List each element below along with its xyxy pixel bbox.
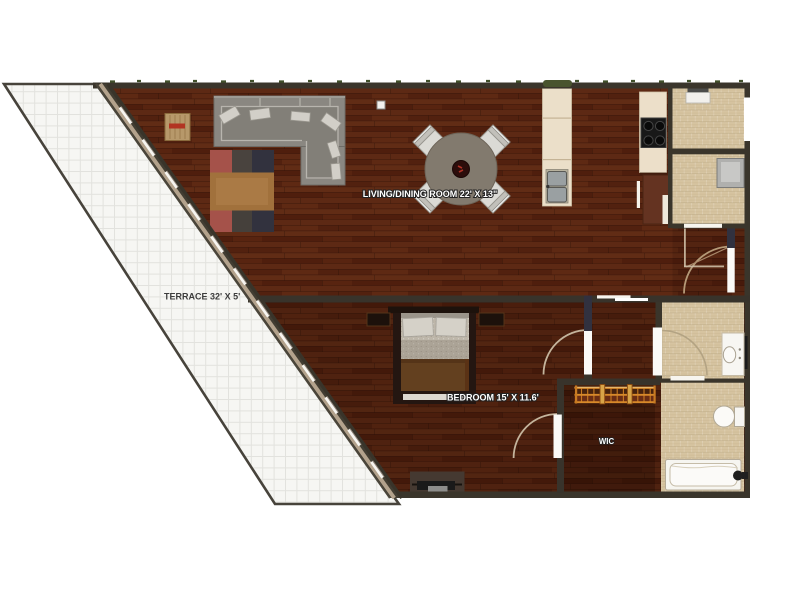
svg-text:BEDROOM 15' X 11.6': BEDROOM 15' X 11.6' xyxy=(447,393,539,403)
svg-text:TERRACE 32' X 5': TERRACE 32' X 5' xyxy=(164,292,240,302)
svg-text:LIVING/DINING ROOM 22' X 13": LIVING/DINING ROOM 22' X 13" xyxy=(363,189,497,199)
svg-text:WIC: WIC xyxy=(599,437,615,446)
